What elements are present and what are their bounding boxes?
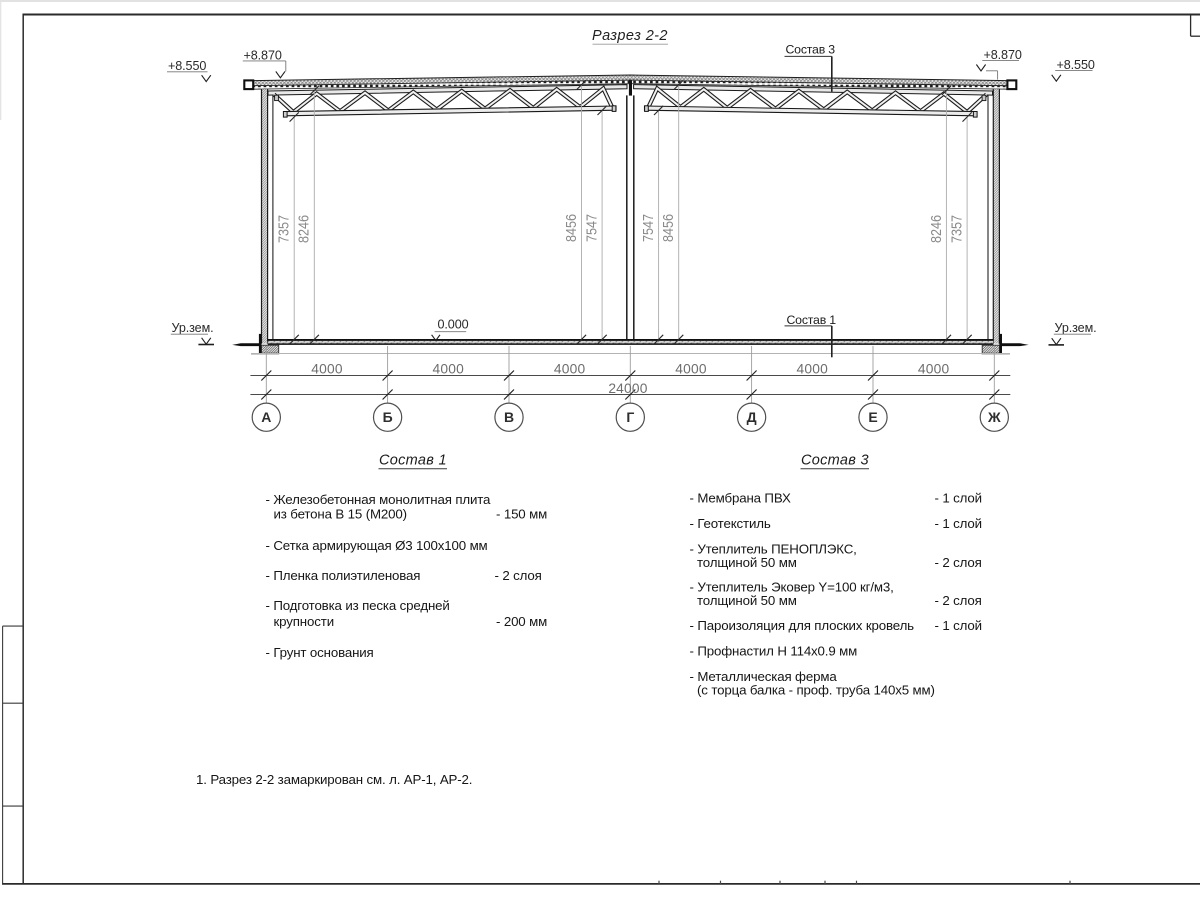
svg-text:Г: Г — [626, 409, 634, 425]
svg-text:Состав 1: Состав 1 — [787, 313, 837, 327]
svg-text:7357: 7357 — [949, 215, 966, 243]
svg-text:7547: 7547 — [640, 214, 657, 242]
svg-text:Разрез 2-2: Разрез 2-2 — [592, 28, 668, 44]
svg-text:Ур.зем.: Ур.зем. — [172, 321, 214, 335]
svg-text:В: В — [504, 409, 514, 425]
svg-text:крупности: крупности — [274, 614, 334, 629]
svg-text:- Пароизоляция для плоских кро: - Пароизоляция для плоских кровель — [690, 618, 915, 633]
svg-text:8456: 8456 — [563, 214, 580, 242]
svg-text:4000: 4000 — [311, 362, 343, 377]
svg-text:7357: 7357 — [276, 215, 293, 243]
svg-text:Ж: Ж — [987, 409, 1001, 425]
svg-text:- 1 слой: - 1 слой — [935, 491, 982, 506]
svg-text:Состав 1: Состав 1 — [379, 452, 447, 468]
svg-text:- Геотекстиль: - Геотекстиль — [690, 516, 771, 531]
svg-text:Б: Б — [383, 409, 393, 425]
svg-text:24000: 24000 — [608, 381, 647, 396]
svg-text:А: А — [261, 409, 271, 425]
svg-text:Состав 3: Состав 3 — [786, 43, 836, 57]
svg-text:4000: 4000 — [918, 362, 950, 377]
svg-text:- Профнастил Н 114х0.9 мм: - Профнастил Н 114х0.9 мм — [690, 644, 858, 659]
svg-text:- Железобетонная монолитная п: - Железобетонная монолитная плита — [266, 492, 492, 507]
svg-text:8246: 8246 — [296, 215, 313, 243]
svg-text:4000: 4000 — [797, 362, 829, 377]
svg-text:Состав 3: Состав 3 — [801, 452, 869, 468]
svg-text:- Сетка армирующая Ø3 100х100: - Сетка армирующая Ø3 100х100 мм — [266, 538, 488, 553]
svg-text:толщиной 50 мм: толщиной 50 мм — [697, 555, 797, 570]
svg-text:- 1 слой: - 1 слой — [935, 618, 982, 633]
svg-text:4000: 4000 — [433, 362, 465, 377]
svg-text:из бетона В 15 (М200): из бетона В 15 (М200) — [274, 507, 407, 522]
svg-text:4000: 4000 — [554, 362, 586, 377]
svg-text:- 200 мм: - 200 мм — [496, 614, 547, 629]
svg-text:- 150 мм: - 150 мм — [496, 507, 547, 522]
svg-text:0.000: 0.000 — [438, 317, 469, 331]
svg-text:- Подготовка из песка средней: - Подготовка из песка средней — [266, 598, 450, 613]
svg-text:Е: Е — [868, 409, 877, 425]
svg-text:+8.870: +8.870 — [244, 48, 282, 62]
svg-text:1. Разрез 2-2 замаркирован см.: 1. Разрез 2-2 замаркирован см. л. АР-1, … — [196, 772, 472, 787]
svg-text:+8.870: +8.870 — [984, 48, 1022, 62]
svg-text:8246: 8246 — [928, 215, 945, 243]
svg-text:толщиной 50 мм: толщиной 50 мм — [697, 593, 797, 608]
svg-text:4000: 4000 — [675, 362, 707, 377]
svg-text:+8.550: +8.550 — [168, 59, 206, 73]
svg-text:- Пленка полиэтиленовая: - Пленка полиэтиленовая — [266, 568, 421, 583]
svg-text:- Грунт основания: - Грунт основания — [266, 645, 374, 660]
svg-text:+8.550: +8.550 — [1057, 58, 1095, 72]
svg-text:7547: 7547 — [584, 214, 601, 242]
svg-text:- 2 слоя: - 2 слоя — [495, 568, 542, 583]
svg-text:8456: 8456 — [660, 214, 677, 242]
svg-text:Ур.зем.: Ур.зем. — [1055, 321, 1097, 335]
svg-text:- 2 слоя: - 2 слоя — [935, 593, 982, 608]
svg-text:- 1 слой: - 1 слой — [935, 516, 982, 531]
svg-text:Д: Д — [747, 409, 757, 425]
svg-text:- 2 слоя: - 2 слоя — [935, 555, 982, 570]
svg-text:- Мембрана ПВХ: - Мембрана ПВХ — [690, 491, 791, 506]
svg-text:(с торца балка - проф. труба 1: (с торца балка - проф. труба 140х5 мм) — [697, 683, 935, 698]
